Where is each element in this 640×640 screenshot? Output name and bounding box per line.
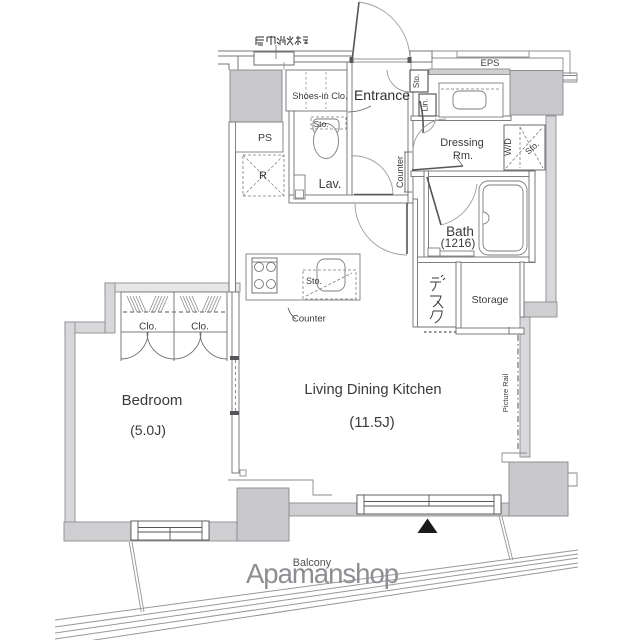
svg-text:(5.0J): (5.0J) [130,422,166,438]
svg-text:Clo.: Clo. [191,322,209,333]
svg-text:R: R [259,170,267,182]
svg-text:Storage: Storage [472,294,509,306]
svg-text:(1216): (1216) [441,236,476,250]
svg-text:Rm.: Rm. [453,150,473,162]
svg-text:(11.5J): (11.5J) [349,414,395,431]
svg-text:Lin.: Lin. [421,99,430,112]
svg-text:Lav.: Lav. [319,177,342,191]
svg-text:Sto.: Sto. [306,276,322,286]
svg-text:Counter: Counter [395,156,405,188]
svg-text:PS: PS [258,132,272,144]
svg-text:Shoes-in Clo.: Shoes-in Clo. [292,91,347,101]
svg-text:Clo.: Clo. [139,322,157,333]
svg-text:Sto.: Sto. [412,74,421,88]
svg-text:Dressing: Dressing [440,137,483,149]
svg-text:Apamanshop: Apamanshop [246,558,399,589]
svg-text:Living Dining Kitchen: Living Dining Kitchen [304,382,441,398]
svg-text:Entrance: Entrance [354,87,410,103]
svg-text:Counter: Counter [292,314,326,325]
svg-text:W/D: W/D [503,138,513,156]
svg-text:Sto.: Sto. [313,119,328,129]
svg-text:Bedroom: Bedroom [122,392,183,409]
svg-text:EPS: EPS [480,58,499,69]
svg-text:Picture Rail: Picture Rail [501,374,510,413]
